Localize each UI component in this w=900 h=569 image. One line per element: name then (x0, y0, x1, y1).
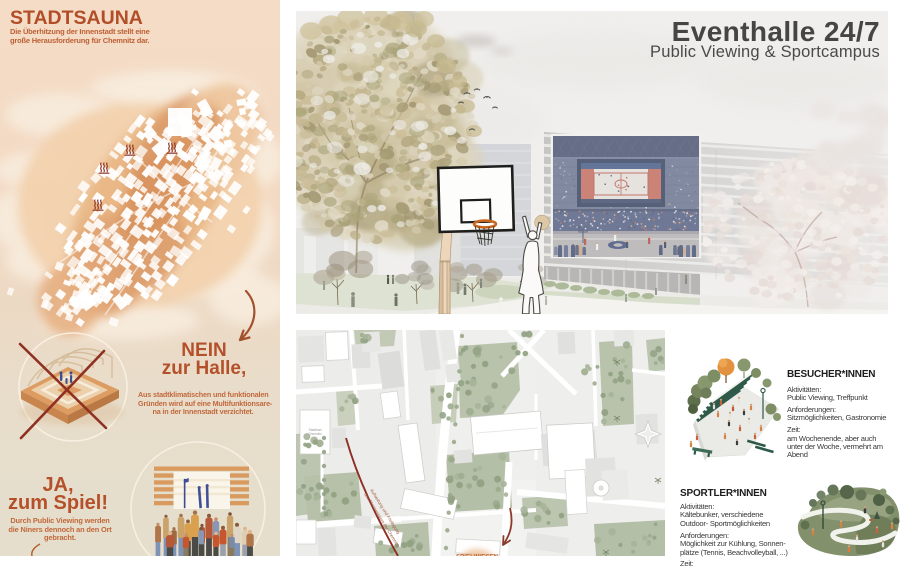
svg-text:Chemnitz: Chemnitz (308, 432, 322, 436)
